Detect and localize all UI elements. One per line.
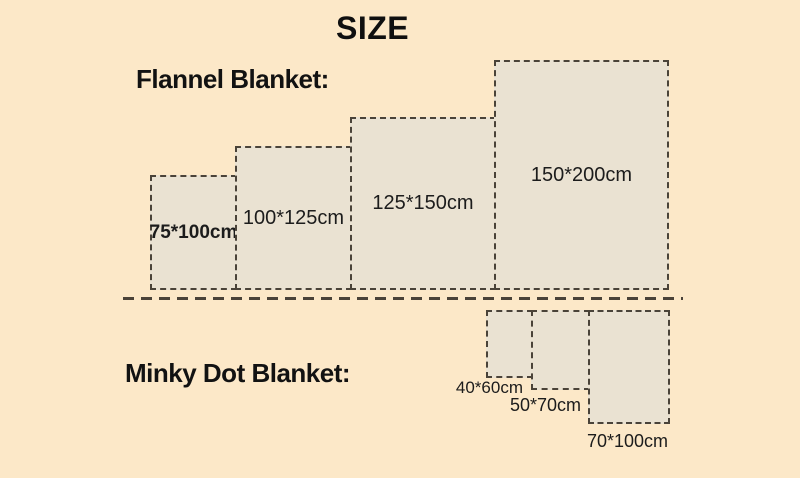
blanket-rect-125x150: 125*150cm [350, 117, 496, 290]
section-divider-dashed-line [123, 297, 683, 300]
size-label: 100*125cm [243, 207, 344, 230]
page-title: SIZE [336, 10, 409, 47]
flannel-section-heading: Flannel Blanket: [136, 64, 329, 95]
size-label: 70*100cm [587, 431, 668, 452]
minky-section-heading: Minky Dot Blanket: [125, 358, 350, 389]
size-label: 75*100cm [150, 222, 238, 244]
size-label: 150*200cm [531, 164, 632, 187]
blanket-rect-70x100: 70*100cm [588, 310, 670, 424]
blanket-size-chart: SIZE Flannel Blanket: 75*100cm100*125cm1… [0, 0, 800, 478]
blanket-rect-40x60: 40*60cm [486, 310, 533, 378]
size-label: 50*70cm [510, 395, 581, 416]
blanket-rect-150x200: 150*200cm [494, 60, 669, 290]
blanket-rect-75x100: 75*100cm [150, 175, 237, 290]
blanket-rect-100x125: 100*125cm [235, 146, 352, 290]
size-label: 125*150cm [372, 192, 473, 215]
blanket-rect-50x70: 50*70cm [531, 310, 590, 390]
